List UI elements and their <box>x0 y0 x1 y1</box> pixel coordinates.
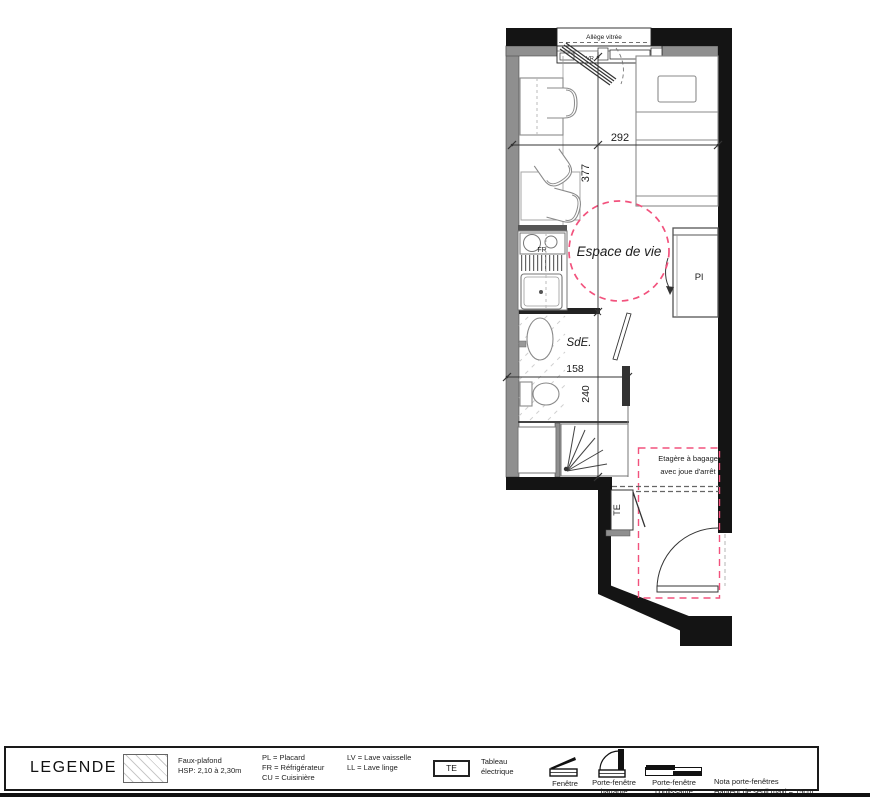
te-symbol-label: TE <box>446 763 457 773</box>
allege-vitree-label: Allège vitrée <box>586 34 622 41</box>
living-room-label: Espace de vie <box>577 244 662 259</box>
washing-machine <box>518 427 556 473</box>
faux-plafond-hsp: HSP: 2,10 à 2,30m <box>178 766 241 776</box>
desk-chair <box>547 88 577 118</box>
abbr-lave-linge: LL = Lave linge <box>347 763 411 773</box>
bed <box>636 56 718 206</box>
dining-chair <box>547 188 584 225</box>
floor-plan-drawing: Allège vitrée VR <box>0 0 870 745</box>
floor-plan-page: Allège vitrée VR <box>0 0 870 800</box>
dim-bath-length: 240 <box>580 385 592 403</box>
dim-room-length: 377 <box>580 164 592 182</box>
fenetre-icon <box>549 756 579 778</box>
sde-east-wall <box>622 366 630 406</box>
entrance-door-swing-arc <box>657 528 718 589</box>
luggage-shelf-label: avec joue d'arrêt <box>660 467 716 476</box>
te-symbol-box: TE <box>433 760 470 777</box>
abbr-placard: PL = Placard <box>262 753 324 763</box>
faux-plafond-swatch <box>123 754 168 783</box>
closet-pl-label: Pl <box>695 272 703 283</box>
electrical-panel-label: TE <box>612 504 622 516</box>
dining-chair <box>534 149 576 191</box>
dim-bath-width: 158 <box>566 363 584 375</box>
fridge-label: FR <box>537 247 546 254</box>
washbasin-tap <box>519 341 526 347</box>
te-label: électrique <box>481 767 514 777</box>
luggage-shelf-label: Etagère à bagages <box>658 454 722 463</box>
legend-title: LEGENDE <box>30 759 117 777</box>
fenetre-label: Fenêtre <box>546 780 584 789</box>
abbr-cuisiniere: CU = Cuisinière <box>262 773 324 783</box>
abbr-lave-vaisselle: LV = Lave vaisselle <box>347 753 411 763</box>
abbr-refrigerateur: FR = Réfrigérateur <box>262 763 324 773</box>
washbasin <box>527 318 553 360</box>
sde-door <box>595 309 631 360</box>
porte-fenetre-battante-icon <box>598 749 628 779</box>
bathroom-label: SdE. <box>567 337 592 349</box>
closet-pl: Pl <box>666 228 718 317</box>
faux-plafond-label: Faux-plafond <box>178 756 241 766</box>
toilet <box>520 382 559 406</box>
faucet-dot <box>539 290 543 294</box>
nota-line: Nota porte-fenêtres <box>714 777 813 787</box>
porte-fenetre-coulissante-icon <box>645 765 703 776</box>
entrance-door <box>657 528 725 592</box>
legend: LEGENDE Faux-plafond HSP: 2,10 à 2,30m P… <box>4 746 819 791</box>
bed-pillow <box>658 76 696 102</box>
shower-head-dot <box>564 467 568 471</box>
page-bottom-rule <box>0 793 870 797</box>
dim-room-width: 292 <box>611 132 629 144</box>
entrance-door-leaf <box>657 586 718 592</box>
kitchen-unit: FR <box>518 225 567 310</box>
left-wall <box>506 46 519 477</box>
te-label: Tableau <box>481 757 514 767</box>
